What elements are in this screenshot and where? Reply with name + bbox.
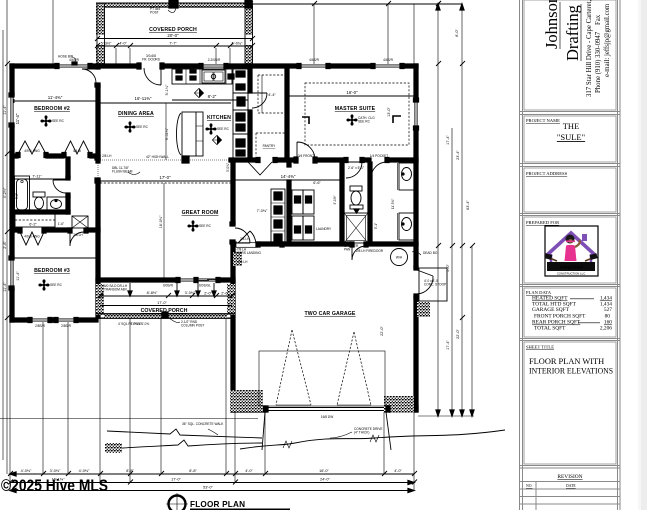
svg-text:SEE RC: SEE RC xyxy=(199,224,212,228)
svg-text:(4" THICK): (4" THICK) xyxy=(354,430,369,434)
svg-text:3/4 FRONT: 3/4 FRONT xyxy=(298,154,314,158)
svg-text:5'-1¼": 5'-1¼" xyxy=(165,84,169,95)
svg-text:2/8S/R: 2/8S/R xyxy=(61,324,71,328)
svg-text:PAN: PAN xyxy=(344,247,351,251)
svg-text:THE: THE xyxy=(563,121,580,131)
svg-text:e-mail: jeffsjp@gmail.com: e-mail: jeffsjp@gmail.com xyxy=(604,3,611,77)
svg-text:14'-4⅜": 14'-4⅜" xyxy=(281,174,296,179)
svg-text:BEDROOM #3: BEDROOM #3 xyxy=(34,268,70,274)
svg-text:5'-8": 5'-8" xyxy=(15,193,19,199)
svg-text:8'-2": 8'-2" xyxy=(208,94,217,99)
svg-text:2/8 LH: 2/8 LH xyxy=(73,233,83,237)
svg-text:16'-0": 16'-0" xyxy=(319,469,329,473)
svg-text:SEE RC: SEE RC xyxy=(358,119,371,123)
svg-text:6/0S/R: 6/0S/R xyxy=(163,284,173,288)
svg-text:NO.: NO. xyxy=(526,484,532,488)
svg-text:GARAGE SQFT: GARAGE SQFT xyxy=(532,307,570,313)
svg-text:6'-2": 6'-2" xyxy=(29,223,37,227)
svg-text:3'-0⅜": 3'-0⅜" xyxy=(185,291,196,295)
svg-text:4'-0⅜": 4'-0⅜" xyxy=(79,469,90,473)
svg-text:5'-1": 5'-1" xyxy=(374,223,378,229)
svg-text:13'-0": 13'-0" xyxy=(387,107,391,117)
svg-text:20'-0": 20'-0" xyxy=(167,33,179,38)
svg-text:RISERS LANDING: RISERS LANDING xyxy=(234,251,261,255)
svg-text:16'-11⅜": 16'-11⅜" xyxy=(135,96,152,101)
svg-text:17'-0": 17'-0" xyxy=(157,301,167,305)
svg-text:GREAT ROOM: GREAT ROOM xyxy=(182,210,219,216)
svg-text:8'-8": 8'-8" xyxy=(126,469,134,473)
svg-text:4/4S/R: 4/4S/R xyxy=(309,58,319,62)
svg-text:PROJECT NAME: PROJECT NAME xyxy=(526,118,560,123)
svg-text:TOTAL SQFT: TOTAL SQFT xyxy=(534,326,566,332)
svg-text:16'-0⅜": 16'-0⅜" xyxy=(159,215,163,228)
svg-text:DEAD BO: DEAD BO xyxy=(423,251,438,255)
svg-text:8'-0": 8'-0" xyxy=(402,159,408,163)
svg-text:8'-0": 8'-0" xyxy=(455,29,459,37)
svg-text:23'-4": 23'-4" xyxy=(456,150,460,160)
svg-text:SEE RC: SEE RC xyxy=(52,119,65,123)
svg-text:SEE RC: SEE RC xyxy=(217,127,230,131)
svg-text:POST: POST xyxy=(150,10,159,14)
svg-text:DINING AREA: DINING AREA xyxy=(118,111,154,117)
svg-text:11'-4": 11'-4" xyxy=(3,282,7,292)
svg-text:2'-6" x 5'-1": 2'-6" x 5'-1" xyxy=(348,166,364,170)
svg-text:FLOOR PLAN WITH: FLOOR PLAN WITH xyxy=(529,357,604,366)
svg-text:5'-3½": 5'-3½" xyxy=(101,42,112,46)
svg-text:BEDROOM #2: BEDROOM #2 xyxy=(34,106,70,112)
svg-text:4/9 B-HNG: 4/9 B-HNG xyxy=(24,235,40,239)
svg-text:PROJECT ADDRESS: PROJECT ADDRESS xyxy=(526,171,568,176)
svg-text:527: 527 xyxy=(604,307,612,313)
svg-text:4/9 B-HNG: 4/9 B-HNG xyxy=(24,149,40,153)
svg-text:2'-8": 2'-8" xyxy=(100,293,104,299)
svg-text:SHEET TITLE: SHEET TITLE xyxy=(526,345,554,350)
svg-text:4/4 BI: 4/4 BI xyxy=(73,149,81,153)
svg-text:FLOOR PLAN: FLOOR PLAN xyxy=(190,500,245,509)
svg-text:8'-8½": 8'-8½" xyxy=(147,291,158,295)
svg-text:11'-4": 11'-4" xyxy=(16,271,20,281)
svg-text:5'-0": 5'-0" xyxy=(446,264,450,272)
svg-text:TWO CAR GARAGE: TWO CAR GARAGE xyxy=(304,311,355,317)
svg-text:17'-0": 17'-0" xyxy=(159,175,171,180)
svg-text:W/H: W/H xyxy=(396,256,403,260)
svg-text:4'-0⅜": 4'-0⅜" xyxy=(21,469,32,473)
svg-text:9'-1½": 9'-1½" xyxy=(333,195,337,204)
svg-text:3'-0⅜": 3'-0⅜" xyxy=(226,163,230,172)
svg-text:17'-4": 17'-4" xyxy=(446,135,450,145)
svg-text:PANTRY: PANTRY xyxy=(263,144,277,148)
svg-text:COLUMN POST: COLUMN POST xyxy=(181,323,204,327)
svg-text:REVISION: REVISION xyxy=(557,474,582,480)
svg-text:16'-0": 16'-0" xyxy=(346,90,358,95)
svg-text:53'-0": 53'-0" xyxy=(203,486,213,490)
svg-text:INTERIOR ELEVATIONS: INTERIOR ELEVATIONS xyxy=(529,367,613,376)
svg-text:CONC. STOOP: CONC. STOOP xyxy=(424,282,446,286)
svg-text:4'-0": 4'-0" xyxy=(245,469,253,473)
svg-text:FLUSH BEAM: FLUSH BEAM xyxy=(112,169,133,173)
svg-text:SEE RC: SEE RC xyxy=(50,283,63,287)
svg-text:Phone (910) 330-0947 Fax: Phone (910) 330-0947 Fax xyxy=(595,14,602,93)
svg-text:FR. DOORS: FR. DOORS xyxy=(142,57,160,61)
svg-text:6'-6": 6'-6" xyxy=(313,181,321,185)
svg-text:4/4S/R: 4/4S/R xyxy=(69,58,79,62)
svg-text:11'-4": 11'-4" xyxy=(15,113,20,124)
svg-text:11'-4": 11'-4" xyxy=(3,105,7,115)
svg-text:22'-0": 22'-0" xyxy=(456,329,460,339)
svg-text:17'-4": 17'-4" xyxy=(446,340,450,350)
svg-text:4'-2½": 4'-2½" xyxy=(3,187,7,198)
svg-text:2/8 LH FIREDOOR: 2/8 LH FIREDOOR xyxy=(356,249,384,253)
svg-text:JumpStart: JumpStart xyxy=(558,265,583,271)
svg-text:7'-7": 7'-7" xyxy=(169,42,177,46)
svg-text:TRANSOM ABV: TRANSOM ABV xyxy=(104,287,128,291)
svg-text:©2025 Hive MLS: ©2025 Hive MLS xyxy=(1,476,108,495)
svg-text:9'-11¼": 9'-11¼" xyxy=(165,127,169,140)
svg-text:17'-0": 17'-0" xyxy=(171,478,181,482)
svg-text:4'-4": 4'-4" xyxy=(268,93,276,97)
svg-text:4'-0": 4'-0" xyxy=(119,42,127,46)
svg-text:8'-8": 8'-8" xyxy=(189,469,197,473)
svg-text:1'-6": 1'-6" xyxy=(58,222,64,226)
svg-text:2/8 LH: 2/8 LH xyxy=(238,260,248,264)
svg-text:SEE RC: SEE RC xyxy=(136,125,149,129)
svg-text:317 Star Hill Drive - Cape Car: 317 Star Hill Drive - Cape Carteret, N.C… xyxy=(586,0,593,97)
svg-text:36" SQL. CONCRETE WALK: 36" SQL. CONCRETE WALK xyxy=(182,422,224,426)
svg-text:16/8 DW: 16/8 DW xyxy=(321,415,333,419)
svg-text:2,206: 2,206 xyxy=(600,326,612,332)
svg-text:2'-0": 2'-0" xyxy=(204,292,212,296)
svg-text:63'-4": 63'-4" xyxy=(466,200,470,210)
svg-text:11'-5⅜": 11'-5⅜" xyxy=(391,199,395,210)
svg-text:KITCHEN: KITCHEN xyxy=(207,115,231,121)
svg-text:"SULE": "SULE" xyxy=(557,132,585,142)
svg-text:PREPARED FOR: PREPARED FOR xyxy=(526,220,560,225)
svg-text:LAUNDRY: LAUNDRY xyxy=(316,227,332,231)
svg-text:11'-4⅜": 11'-4⅜" xyxy=(48,95,63,100)
svg-text:7'-11": 7'-11" xyxy=(32,175,42,179)
svg-text:22'-0": 22'-0" xyxy=(380,326,384,336)
svg-text:5'-0¾": 5'-0¾" xyxy=(232,42,243,46)
svg-text:2/8 LH: 2/8 LH xyxy=(102,154,112,158)
svg-text:3'-0⅜": 3'-0⅜" xyxy=(50,469,61,473)
svg-text:7'-0⅜": 7'-0⅜" xyxy=(257,209,268,213)
svg-text:4'-0⅜ x 4'-0⅜: 4'-0⅜ x 4'-0⅜ xyxy=(130,322,149,326)
svg-text:Drafting: Drafting xyxy=(563,5,582,61)
svg-text:Johnson: Johnson xyxy=(542,0,561,49)
svg-text:24'-0": 24'-0" xyxy=(320,478,330,482)
svg-text:COVERED PORCH: COVERED PORCH xyxy=(141,308,188,314)
svg-text:2'-6": 2'-6" xyxy=(221,292,229,296)
svg-text:6/0S/GL: 6/0S/GL xyxy=(199,284,211,288)
svg-text:2-2/0S/R: 2-2/0S/R xyxy=(208,58,221,62)
svg-text:4'-0": 4'-0" xyxy=(394,469,402,473)
svg-text:PLAN DATA: PLAN DATA xyxy=(526,290,552,295)
svg-text:DATE: DATE xyxy=(566,484,576,488)
svg-text:2/8S/R: 2/8S/R xyxy=(35,324,45,328)
svg-text:4/4S/R: 4/4S/R xyxy=(383,58,393,62)
svg-text:MASTER SUITE: MASTER SUITE xyxy=(335,106,376,112)
svg-text:2'-8": 2'-8" xyxy=(3,241,7,249)
svg-text:CONSTRUCTION LLC: CONSTRUCTION LLC xyxy=(557,272,585,276)
